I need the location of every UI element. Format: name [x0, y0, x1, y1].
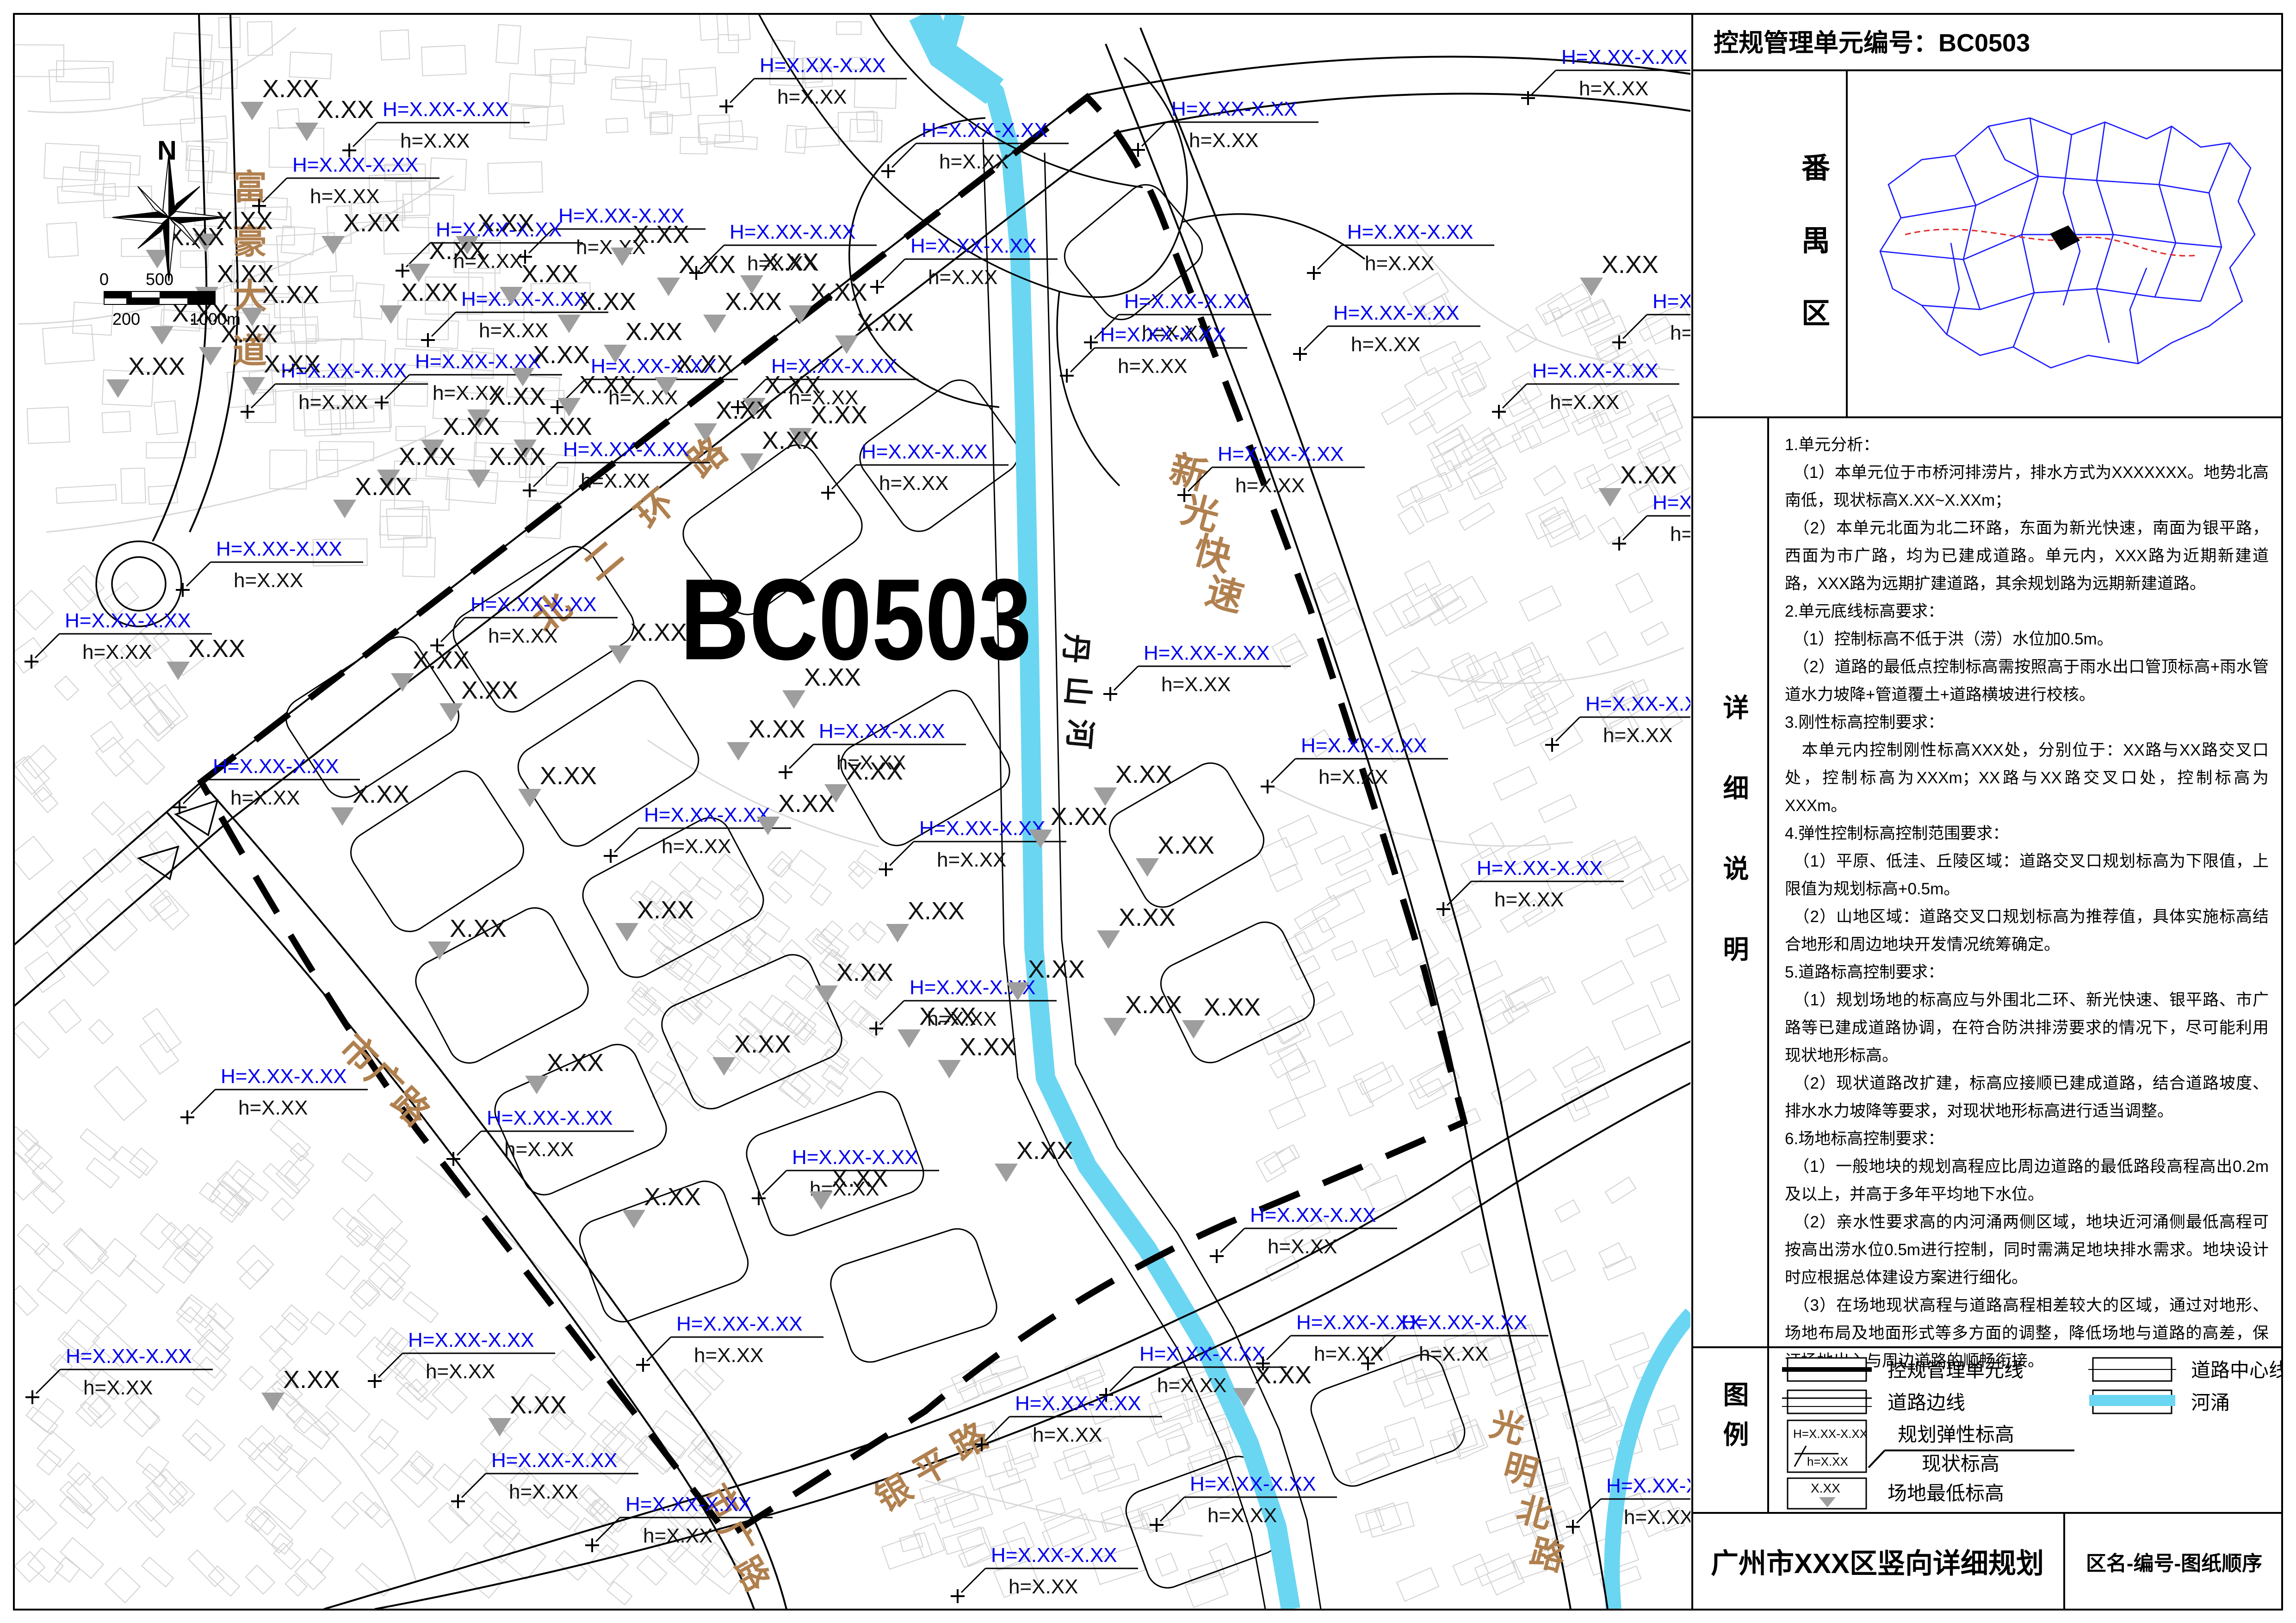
svg-text:h=X.XX: h=X.XX — [1033, 1424, 1102, 1446]
svg-text:河涌: 河涌 — [2191, 1392, 2230, 1413]
svg-text:h=X.XX: h=X.XX — [488, 625, 557, 647]
svg-text:丹: 丹 — [1058, 632, 1094, 665]
svg-text:X.XX: X.XX — [461, 676, 518, 704]
district-label: 番禺区 — [1792, 153, 1833, 371]
svg-text:h=X.XX: h=X.XX — [662, 835, 731, 858]
legend-road-centerline: 道路中心线 — [2088, 1358, 2283, 1381]
panel-header: 控规管理单元编号：BC0503 — [1693, 15, 2283, 69]
svg-text:道路中心线: 道路中心线 — [2191, 1359, 2283, 1381]
svg-text:X.XX: X.XX — [734, 1030, 791, 1058]
svg-text:X.XX: X.XX — [749, 715, 805, 743]
svg-text:X.XX: X.XX — [1125, 991, 1182, 1019]
svg-text:H=X.XX-X.XX: H=X.XX-X.XX — [922, 119, 1048, 142]
svg-text:H=X.XX-X.XX: H=X.XX-X.XX — [491, 1449, 618, 1472]
elevation-marker: H=X.XX-X.XXh=X.XX — [881, 119, 1069, 178]
svg-text:X.XX: X.XX — [1028, 955, 1085, 983]
svg-text:X.XX: X.XX — [521, 260, 578, 288]
district-locator-map — [1855, 83, 2271, 403]
elevation-marker: H=X.XX-X.XXh=X.XX — [1492, 359, 1679, 419]
legend-section-label: 图例 — [1715, 1381, 1753, 1461]
svg-text:H=X.XX-X.XX: H=X.XX-X.XX — [470, 593, 597, 616]
elevation-marker: H=X.XX-X.XXh=X.XX — [1150, 1473, 1337, 1532]
spot-elevation-marker: X.XX — [615, 896, 694, 942]
spot-elevation-marker: X.XX — [241, 75, 319, 120]
sheet-number: 区名-编号-图纸顺序 — [2065, 1512, 2283, 1611]
svg-text:X.XX: X.XX — [547, 1049, 604, 1077]
svg-text:H=X.XX-X.XX: H=X.XX-X.XX — [66, 1345, 192, 1368]
svg-text:X.XX: X.XX — [811, 279, 867, 306]
svg-text:H=X.XX-X.XX: H=X.XX-X.XX — [644, 804, 770, 826]
svg-text:H=X.XX-X.XX: H=X.XX-X.XX — [1171, 98, 1298, 120]
svg-text:X.XX: X.XX — [908, 897, 965, 925]
road-name-label: 丹山河 — [1058, 632, 1097, 750]
spot-elevation-marker: X.XX — [608, 619, 687, 664]
svg-text:道路边线: 道路边线 — [1888, 1392, 1965, 1413]
svg-text:h=X.XX: h=X.XX — [238, 1096, 308, 1119]
svg-text:X.XX: X.XX — [128, 353, 185, 380]
svg-text:h=X.XX: h=X.XX — [1318, 766, 1388, 788]
svg-text:X.XX: X.XX — [283, 1366, 340, 1394]
svg-text:200: 200 — [112, 310, 140, 328]
svg-text:h=X.XX: h=X.XX — [479, 319, 548, 342]
svg-text:H=X.XX-X.XX: H=X.XX-X.XX — [1250, 1204, 1376, 1227]
road-name-label: 光明北路 — [1486, 1405, 1570, 1579]
svg-text:场地最低标高: 场地最低标高 — [1888, 1482, 2004, 1504]
svg-text:河: 河 — [1062, 718, 1097, 750]
svg-text:X.XX: X.XX — [579, 371, 636, 399]
svg-text:X.XX: X.XX — [919, 1003, 976, 1030]
elevation-marker: H=X.XX-X.XXh=X.XX — [176, 538, 363, 597]
svg-text:h=X.XX: h=X.XX — [400, 130, 470, 152]
svg-text:h=X.XX: h=X.XX — [777, 86, 847, 108]
svg-text:H=X.XX-X.XX: H=X.XX-X.XX — [65, 609, 191, 632]
legend-site-min-elevation: X.XX 场地最低标高 — [1788, 1478, 2004, 1509]
road-name-label: 市广路 — [332, 1027, 437, 1134]
spot-elevation-marker: X.XX — [740, 427, 819, 472]
svg-text:X.XX: X.XX — [1115, 761, 1172, 788]
spot-elevation-marker: X.XX — [1580, 251, 1659, 296]
elevation-marker: H=X.XX-X.XXh=X.XX — [975, 1392, 1162, 1451]
elevation-marker: H=X.XX-X.XXh=X.XX — [1545, 693, 1733, 752]
svg-text:X.XX: X.XX — [489, 383, 546, 410]
unit-code-header: 控规管理单元编号：BC0503 — [1693, 15, 2283, 71]
svg-text:H=X.XX-X.XX: H=X.XX-X.XX — [408, 1329, 534, 1351]
spot-elevation-marker: X.XX — [379, 279, 458, 324]
svg-text:h=X.XX: h=X.XX — [643, 1524, 712, 1547]
svg-text:h=X.XX: h=X.XX — [426, 1360, 495, 1383]
svg-text:X.XX: X.XX — [216, 207, 273, 235]
svg-text:0: 0 — [99, 270, 109, 289]
svg-text:H=X.XX-X.XX: H=X.XX-X.XX — [1218, 443, 1344, 465]
divider — [1691, 416, 2283, 418]
svg-text:X.XX: X.XX — [959, 1033, 1016, 1061]
elevation-marker: H=X.XX-X.XXh=X.XX — [1612, 290, 1800, 349]
svg-text:X.XX: X.XX — [540, 762, 597, 790]
svg-text:银: 银 — [869, 1468, 919, 1519]
svg-text:H=X.XX-X.XX: H=X.XX-X.XX — [1333, 302, 1460, 324]
svg-text:现状标高: 现状标高 — [1922, 1453, 1999, 1474]
spot-elevation-marker: X.XX — [1094, 761, 1172, 806]
elevation-marker: H=X.XX-X.XXh=X.XX — [1293, 302, 1480, 361]
spot-elevation-marker: X.XX — [333, 473, 412, 518]
svg-text:H=X.XX-X.XX: H=X.XX-X.XX — [1793, 1427, 1868, 1441]
svg-text:h=X.XX: h=X.XX — [928, 266, 997, 289]
svg-text:H=X.XX-X.XX: H=X.XX-X.XX — [1561, 46, 1688, 68]
svg-text:h=X.XX: h=X.XX — [298, 391, 368, 414]
svg-text:h=X.XX: h=X.XX — [83, 1376, 153, 1399]
elevation-marker: H=X.XX-X.XXh=X.XX — [636, 1313, 823, 1372]
svg-text:H=X.XX-X.XX: H=X.XX-X.XX — [1139, 1343, 1266, 1365]
elevation-marker: H=X.XX-X.XXh=X.XX — [1612, 491, 1800, 551]
svg-text:h=X.XX: h=X.XX — [1351, 333, 1420, 356]
spot-elevation-marker: X.XX — [727, 715, 805, 761]
svg-text:X.XX: X.XX — [831, 1165, 888, 1192]
svg-text:X.XX: X.XX — [764, 371, 821, 399]
svg-text:h=X.XX: h=X.XX — [1235, 474, 1305, 497]
svg-text:X.XX: X.XX — [1620, 461, 1677, 489]
current-unit-marker — [2050, 225, 2080, 250]
svg-text:山: 山 — [1060, 675, 1095, 707]
svg-text:X.XX: X.XX — [264, 350, 321, 378]
svg-text:h=X.XX: h=X.XX — [1624, 1506, 1693, 1529]
svg-text:h=X.XX: h=X.XX — [1009, 1575, 1078, 1598]
spot-elevation-marker: X.XX — [322, 209, 400, 254]
svg-text:X.XX: X.XX — [399, 443, 456, 471]
svg-text:X.XX: X.XX — [579, 288, 636, 316]
svg-text:X.XX: X.XX — [836, 959, 893, 986]
elevation-marker: H=X.XX-X.XXh=X.XX — [1210, 1204, 1397, 1263]
svg-text:X.XX: X.XX — [429, 237, 486, 265]
svg-text:X.XX: X.XX — [676, 350, 733, 378]
svg-text:h=X.XX: h=X.XX — [1579, 77, 1648, 100]
elevation-marker: H=X.XX-X.XXh=X.XX — [1103, 642, 1291, 701]
legend: 控规管理单元线 道路边线 H=X.XX-X.XX h=X.XX 规划弹性标高 现… — [1769, 1346, 2283, 1512]
svg-text:h=X.XX: h=X.XX — [504, 1138, 574, 1161]
svg-text:X.XX: X.XX — [450, 915, 507, 942]
svg-text:h=X.XX: h=X.XX — [1189, 129, 1258, 152]
svg-text:h=X.XX: h=X.XX — [939, 150, 1009, 173]
spot-elevation-marker: X.XX — [1233, 1361, 1312, 1406]
elevation-marker: H=X.XX-X.XXh=X.XX — [604, 804, 791, 863]
svg-text:H=X.XX-X.XX: H=X.XX-X.XX — [1532, 359, 1659, 382]
svg-text:h=X.XX: h=X.XX — [1314, 1343, 1383, 1365]
unit-code-label: BC0503 — [680, 555, 1032, 684]
svg-text:控规管理单元线: 控规管理单元线 — [1888, 1359, 2024, 1381]
spot-elevation-marker: X.XX — [657, 251, 736, 296]
svg-text:H=X.XX-X.XX: H=X.XX-X.XX — [216, 538, 342, 560]
svg-text:X.XX: X.XX — [477, 209, 534, 237]
svg-text:平: 平 — [907, 1442, 957, 1493]
legend-elastic-elevation: H=X.XX-X.XX h=X.XX 规划弹性标高 现状标高 — [1788, 1420, 2074, 1474]
spot-elevation-marker: X.XX — [488, 1391, 567, 1437]
svg-text:X.XX: X.XX — [533, 341, 590, 369]
svg-text:H=X.XX-X.XX: H=X.XX-X.XX — [676, 1313, 803, 1335]
svg-text:h=X.XX: h=X.XX — [1365, 252, 1434, 275]
svg-text:h=X.XX: h=X.XX — [1807, 1455, 1848, 1468]
spot-elevation-marker: X.XX — [1097, 904, 1176, 949]
spot-elevation-marker: X.XX — [835, 309, 914, 354]
detail-notes-text: 1.单元分析： （1）本单元位于市桥河排涝片，排水方式为XXXXXXX。地势北高… — [1785, 431, 2269, 1338]
svg-text:二: 二 — [576, 533, 631, 588]
svg-text:h=X.XX: h=X.XX — [509, 1481, 578, 1503]
svg-text:H=X.XX-X.XX: H=X.XX-X.XX — [919, 817, 1046, 840]
svg-text:h=X.XX: h=X.XX — [1603, 724, 1672, 747]
svg-text:h=X.XX: h=X.XX — [1419, 1343, 1488, 1365]
svg-text:h=X.XX: h=X.XX — [1550, 391, 1619, 414]
svg-text:h=X.XX: h=X.XX — [879, 472, 948, 495]
svg-text:h=X.XX: h=X.XX — [82, 641, 152, 663]
svg-text:X.XX: X.XX — [1119, 904, 1176, 931]
detail-section-label: 详细说明 — [1715, 694, 1753, 1016]
spot-elevation-marker: X.XX — [106, 353, 185, 398]
svg-text:X.XX: X.XX — [353, 781, 409, 808]
svg-text:h=X.XX: h=X.XX — [234, 569, 303, 592]
elevation-marker: H=X.XX-X.XXh=X.XX — [1060, 323, 1247, 383]
svg-text:H=X.XX-X.XX: H=X.XX-X.XX — [910, 235, 1037, 257]
svg-text:X.XX: X.XX — [1051, 803, 1108, 830]
svg-text:H=X.XX-X.XX: H=X.XX-X.XX — [625, 1493, 752, 1516]
elevation-marker: H=X.XX-X.XXh=X.XX — [25, 609, 212, 669]
legend-unit-line: 控规管理单元线 — [1782, 1358, 2024, 1381]
svg-text:X.XX: X.XX — [262, 281, 319, 309]
spot-elevation-marker: X.XX — [557, 371, 636, 416]
svg-text:1000m: 1000m — [190, 310, 241, 328]
spot-elevation-marker: X.XX — [525, 1049, 604, 1094]
svg-text:H=X.XX-X.XX: H=X.XX-X.XX — [1100, 323, 1226, 346]
sheet-title: 广州市XXX区竖向详细规划 — [1691, 1512, 2063, 1611]
svg-text:X.XX: X.XX — [1157, 831, 1214, 859]
spot-elevation-marker: X.XX — [407, 237, 486, 282]
plan-sheet: 富豪大道北二环路新光快速市广路市广路银平路光明北路丹山河 H=X.XX-X.XX… — [0, 0, 2296, 1623]
svg-text:X.XX: X.XX — [762, 248, 819, 276]
svg-text:X.XX: X.XX — [343, 209, 400, 237]
svg-text:X.XX: X.XX — [1602, 251, 1659, 279]
svg-text:规划弹性标高: 规划弹性标高 — [1898, 1424, 2014, 1445]
svg-text:h=X.XX: h=X.XX — [1157, 1374, 1226, 1397]
spot-elevation-marker: X.XX — [428, 915, 507, 960]
svg-text:X.XX: X.XX — [630, 619, 687, 646]
svg-text:X.XX: X.XX — [716, 396, 773, 424]
elevation-marker: H=X.XX-X.XXh=X.XX — [368, 1329, 555, 1388]
spot-elevation-marker: X.XX — [938, 1033, 1016, 1078]
svg-text:X.XX: X.XX — [762, 427, 819, 454]
svg-text:H=X.XX-X.XX: H=X.XX-X.XX — [563, 438, 689, 461]
svg-text:X.XX: X.XX — [637, 896, 694, 924]
svg-text:富: 富 — [233, 168, 267, 206]
svg-text:X.XX: X.XX — [355, 473, 412, 501]
interchange-ramps — [96, 14, 1365, 879]
svg-text:X.XX: X.XX — [1204, 993, 1261, 1021]
svg-text:X.XX: X.XX — [510, 1391, 567, 1419]
svg-text:X.XX: X.XX — [679, 251, 736, 279]
svg-text:X.XX: X.XX — [625, 318, 682, 346]
spot-elevation-marker: X.XX — [518, 762, 597, 807]
svg-text:X.XX: X.XX — [632, 221, 689, 248]
svg-text:北: 北 — [1513, 1490, 1556, 1536]
svg-text:h=X.XX: h=X.XX — [310, 185, 379, 208]
elevation-marker: H=X.XX-X.XXh=X.XX — [951, 1544, 1138, 1603]
svg-text:h=X.XX: h=X.XX — [1207, 1504, 1277, 1527]
svg-text:h=X.XX: h=X.XX — [1494, 888, 1564, 911]
divider — [1846, 69, 1848, 416]
svg-text:H=X.XX-X.XX: H=X.XX-X.XX — [213, 755, 339, 778]
spot-elevation-marker: X.XX — [712, 1030, 791, 1076]
elevation-marker: H=X.XX-X.XXh=X.XX — [1131, 98, 1318, 157]
svg-text:h=X.XX: h=X.XX — [937, 849, 1006, 871]
elevation-marker: H=X.XX-X.XXh=X.XX — [180, 1065, 368, 1124]
svg-text:h=X.XX: h=X.XX — [1161, 673, 1231, 696]
svg-text:H=X.XX-X.XX: H=X.XX-X.XX — [1401, 1311, 1528, 1334]
spot-elevation-marker: X.XX — [1182, 993, 1261, 1039]
divider — [1767, 416, 1769, 1346]
svg-text:H=X.XX-X.XX: H=X.XX-X.XX — [1347, 221, 1473, 243]
svg-text:X.XX: X.XX — [443, 413, 500, 440]
svg-text:H=X.XX-X.XX: H=X.XX-X.XX — [1477, 857, 1603, 880]
elevation-marker: H=X.XX-X.XXh=X.XX — [25, 1345, 213, 1404]
svg-text:H=X.XX-X.XX: H=X.XX-X.XX — [1144, 642, 1270, 664]
svg-text:X.XX: X.XX — [846, 757, 903, 785]
svg-text:H=X.XX-X.XX: H=X.XX-X.XX — [1124, 290, 1250, 313]
spot-elevation-marker: X.XX — [886, 897, 965, 942]
svg-text:H=X.XX-X.XX: H=X.XX-X.XX — [1652, 491, 1779, 514]
svg-text:X.XX: X.XX — [857, 309, 914, 336]
spot-elevation-marker: X.XX — [167, 635, 245, 680]
spot-elevation-marker: X.XX — [694, 396, 773, 442]
svg-text:H=X.XX-X.XX: H=X.XX-X.XX — [1606, 1474, 1733, 1497]
svg-text:h=X.XX: h=X.XX — [581, 470, 650, 492]
elevation-marker: H=X.XX-X.XXh=X.XX — [1261, 734, 1448, 793]
svg-text:X.XX: X.XX — [778, 790, 835, 818]
elevation-marker: H=X.XX-X.XXh=X.XX — [719, 54, 907, 113]
svg-text:h=X.XX: h=X.XX — [230, 787, 300, 809]
svg-text:X.XX: X.XX — [262, 75, 319, 103]
spot-elevation-marker: X.XX — [995, 1137, 1073, 1182]
svg-text:H=X.XX-X.XX: H=X.XX-X.XX — [221, 1065, 347, 1088]
svg-text:速: 速 — [1201, 570, 1248, 619]
svg-text:H=X.XX-X.XX: H=X.XX-X.XX — [1301, 734, 1427, 757]
svg-text:X.XX: X.XX — [401, 279, 458, 306]
svg-text:X.XX: X.XX — [489, 443, 546, 471]
spot-elevation-marker: X.XX — [331, 781, 409, 826]
svg-text:X.XX: X.XX — [413, 646, 470, 674]
svg-text:H=X.XX-X.XX: H=X.XX-X.XX — [383, 98, 509, 121]
spot-elevation-marker: X.XX — [703, 288, 782, 333]
svg-text:H=X.XX-X.XX: H=X.XX-X.XX — [861, 440, 988, 463]
panel-divider — [1691, 13, 1693, 1611]
legend-road-edge: 道路边线 — [1782, 1390, 1965, 1413]
svg-text:H=X.XX-X.XX: H=X.XX-X.XX — [991, 1544, 1117, 1567]
spot-elevation-marker: X.XX — [789, 279, 867, 324]
svg-text:H=X.XX-X.XX: H=X.XX-X.XX — [730, 221, 856, 243]
svg-text:H=X.XX-X.XX: H=X.XX-X.XX — [1015, 1392, 1141, 1415]
svg-text:h=X.XX: h=X.XX — [1670, 523, 1739, 545]
elevation-marker: H=X.XX-X.XXh=X.XX — [1307, 221, 1494, 280]
svg-text:H=X.XX-X.XX: H=X.XX-X.XX — [461, 288, 588, 310]
svg-text:H=X.XX-X.XX: H=X.XX-X.XX — [292, 154, 419, 176]
svg-text:N: N — [157, 136, 177, 166]
svg-text:H=X.XX-X.XX: H=X.XX-X.XX — [487, 1107, 613, 1129]
svg-text:X.XX: X.XX — [1811, 1481, 1840, 1495]
svg-text:X.XX: X.XX — [188, 635, 245, 663]
svg-text:X.XX: X.XX — [317, 96, 374, 124]
divider — [1691, 69, 2283, 71]
svg-text:X.XX: X.XX — [535, 413, 592, 440]
spot-elevation-marker: X.XX — [1103, 991, 1182, 1036]
svg-text:X.XX: X.XX — [1255, 1361, 1312, 1389]
svg-text:h=X.XX: h=X.XX — [1118, 355, 1187, 378]
svg-text:h=X.XX: h=X.XX — [694, 1344, 763, 1367]
svg-text:h=X.XX: h=X.XX — [1670, 322, 1739, 344]
svg-text:X.XX: X.XX — [644, 1183, 701, 1211]
elevation-marker: H=X.XX-X.XXh=X.XX — [523, 438, 710, 497]
svg-text:H=X.XX-X.XX: H=X.XX-X.XX — [1190, 1473, 1316, 1495]
svg-text:X.XX: X.XX — [167, 223, 224, 251]
spot-elevation-marker: X.XX — [1136, 831, 1214, 877]
svg-text:h=X.XX: h=X.XX — [1268, 1235, 1337, 1258]
spot-elevation-marker: X.XX — [391, 646, 470, 692]
legend-river: 河涌 — [2089, 1390, 2230, 1413]
svg-text:H=X.XX-X.XX: H=X.XX-X.XX — [1652, 290, 1779, 313]
svg-text:光: 光 — [1486, 1405, 1529, 1450]
svg-text:X.XX: X.XX — [725, 288, 782, 316]
svg-text:X.XX: X.XX — [811, 401, 867, 429]
svg-text:X.XX: X.XX — [1016, 1137, 1073, 1165]
svg-text:H=X.XX-X.XX: H=X.XX-X.XX — [760, 54, 886, 77]
svg-text:H=X.XX-X.XX: H=X.XX-X.XX — [819, 720, 945, 743]
svg-text:500: 500 — [146, 270, 173, 289]
